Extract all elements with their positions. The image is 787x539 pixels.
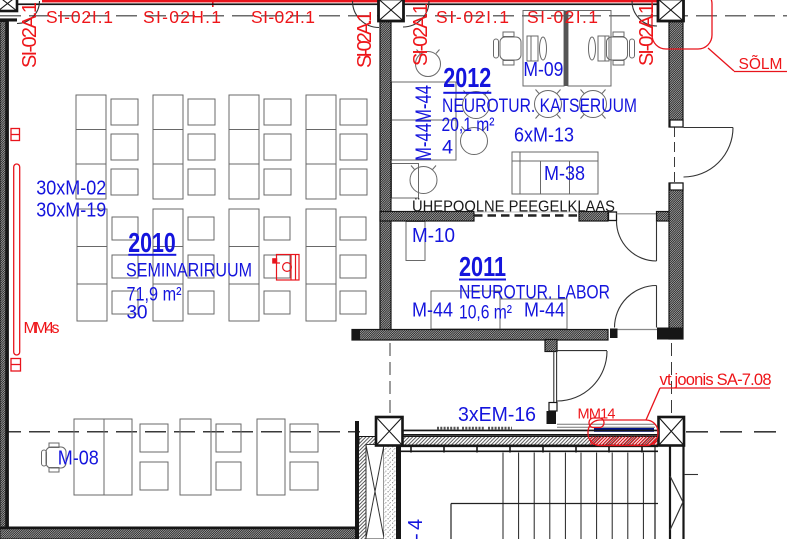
svg-text:SI-02I.1: SI-02I.1 <box>251 7 315 27</box>
svg-text:M-44: M-44 <box>412 300 453 322</box>
svg-text:-: - <box>405 533 427 539</box>
svg-text:SEMINARIRUUM: SEMINARIRUUM <box>126 260 252 282</box>
svg-text:2010: 2010 <box>128 227 176 258</box>
svg-text:SÕLM 2: SÕLM 2 <box>739 56 787 73</box>
svg-text:SI-02I.1: SI-02I.1 <box>46 7 113 27</box>
svg-text:10,6 m²: 10,6 m² <box>459 302 512 324</box>
svg-text:6xM-13: 6xM-13 <box>514 125 574 147</box>
svg-text:M-09: M-09 <box>523 59 563 81</box>
svg-text:ÜHEPOOLNE PEEGELKLAAS: ÜHEPOOLNE PEEGELKLAAS <box>412 198 615 216</box>
svg-text:2012: 2012 <box>443 62 491 93</box>
svg-text:M-10: M-10 <box>412 225 455 247</box>
svg-text:2011: 2011 <box>459 251 506 282</box>
svg-text:20,1 m²: 20,1 m² <box>442 114 495 136</box>
svg-text:30: 30 <box>127 302 148 324</box>
svg-text:SI-02A.1: SI-02A.1 <box>410 3 432 66</box>
svg-text:MM4s: MM4s <box>24 320 60 337</box>
svg-text:M-08: M-08 <box>58 448 99 470</box>
svg-text:SI-02A.1: SI-02A.1 <box>354 11 376 68</box>
svg-text:4: 4 <box>442 137 453 159</box>
svg-text:vt joonis SA-7.08: vt joonis SA-7.08 <box>660 371 772 389</box>
svg-text:30xM-02: 30xM-02 <box>36 178 106 200</box>
svg-text:M-44M-44: M-44M-44 <box>411 85 436 161</box>
svg-text:SI-02A.1: SI-02A.1 <box>19 2 41 68</box>
svg-text:M-44: M-44 <box>524 300 565 322</box>
svg-text:SI-02I.1: SI-02I.1 <box>527 7 598 27</box>
svg-text:3xEM-16: 3xEM-16 <box>458 404 536 426</box>
svg-text:MM14: MM14 <box>578 407 616 423</box>
svg-text:30xM-19: 30xM-19 <box>36 200 106 222</box>
svg-text:4: 4 <box>405 519 427 530</box>
svg-text:M-38: M-38 <box>544 163 585 185</box>
svg-text:SI-02A.1: SI-02A.1 <box>636 3 658 66</box>
